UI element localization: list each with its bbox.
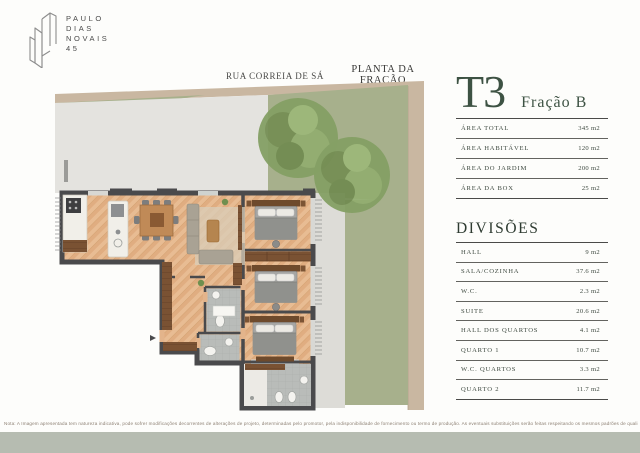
divisions-table: HALL 9 m2 SALA/COZINHA 37.6 m2 W.C. 2.3 … — [456, 243, 608, 400]
entrance-arrow-icon — [150, 335, 156, 341]
division-row: HALL 9 m2 — [456, 243, 608, 263]
floor-plan — [55, 80, 440, 415]
unit-type-code: T3 — [456, 70, 505, 114]
footer-bar — [0, 432, 640, 453]
tree-2 — [314, 137, 390, 213]
division-value: 11.7 m2 — [577, 386, 608, 393]
division-value: 20.6 m2 — [576, 308, 608, 315]
division-value: 10.7 m2 — [576, 347, 608, 354]
wardrobe-divider — [245, 252, 311, 262]
patio-terrace — [55, 95, 268, 193]
division-label: SUITE — [456, 308, 484, 315]
brand-name: PAULO DIAS NOVAIS 45 — [66, 14, 109, 54]
unit-title: T3 Fração B — [456, 70, 608, 116]
area-row: ÁREA HABITÁVEL 120 m2 — [456, 139, 608, 159]
bathroom-wc-quartos — [200, 335, 240, 361]
division-value: 37.6 m2 — [576, 268, 608, 275]
garden-right — [345, 200, 408, 405]
division-row: HALL DOS QUARTOS 4.1 m2 — [456, 321, 608, 341]
division-row: SALA/COZINHA 37.6 m2 — [456, 263, 608, 283]
area-label: ÁREA DA BOX — [456, 185, 514, 192]
dining-table — [134, 200, 179, 241]
division-value: 4.1 m2 — [580, 327, 608, 334]
bathroom-wc — [207, 289, 241, 332]
area-label: ÁREA HABITÁVEL — [456, 145, 529, 152]
division-label: W.C. — [456, 288, 478, 295]
area-label: ÁREA DO JARDIM — [456, 165, 527, 172]
area-value: 345 m2 — [578, 125, 608, 132]
divisions-title: DIVISÕES — [456, 220, 608, 238]
areas-table: ÁREA TOTAL 345 m2 ÁREA HABITÁVEL 120 m2 … — [456, 119, 608, 199]
brand-line: 45 — [66, 44, 109, 54]
division-label: QUARTO 2 — [456, 386, 499, 393]
patio-post — [64, 160, 68, 182]
division-value: 3.3 m2 — [580, 366, 608, 373]
division-row: SUITE 20.6 m2 — [456, 302, 608, 322]
brand-line: PAULO — [66, 14, 109, 24]
unit-fraction-label: Fração B — [521, 94, 587, 112]
division-value: 9 m2 — [585, 249, 608, 256]
floor-plan-drawing — [55, 80, 440, 415]
area-value: 120 m2 — [578, 145, 608, 152]
area-value: 200 m2 — [578, 165, 608, 172]
area-row: ÁREA DA BOX 25 m2 — [456, 179, 608, 199]
division-label: HALL — [456, 249, 482, 256]
bathroom-suite — [244, 364, 311, 406]
division-row: QUARTO 2 11.7 m2 — [456, 380, 608, 400]
garden-path — [313, 193, 345, 408]
area-label: ÁREA TOTAL — [456, 125, 509, 132]
disclaimer-note: Nota: A Imagem apresentada tem natureza … — [4, 421, 638, 426]
division-row: W.C. 2.3 m2 — [456, 282, 608, 302]
building-sketch-icon — [24, 6, 60, 68]
area-value: 25 m2 — [582, 185, 608, 192]
brand-logo: PAULO DIAS NOVAIS 45 — [24, 6, 109, 68]
suite-bedroom — [245, 316, 304, 362]
area-row: ÁREA DO JARDIM 200 m2 — [456, 159, 608, 179]
brand-line: NOVAIS — [66, 34, 109, 44]
division-label: QUARTO 1 — [456, 347, 499, 354]
division-value: 2.3 m2 — [580, 288, 608, 295]
division-label: SALA/COZINHA — [456, 268, 519, 275]
area-row: ÁREA TOTAL 345 m2 — [456, 119, 608, 139]
division-label: HALL DOS QUARTOS — [456, 327, 538, 334]
division-label: W.C. QUARTOS — [456, 366, 516, 373]
division-row: W.C. QUARTOS 3.3 m2 — [456, 361, 608, 381]
brand-line: DIAS — [66, 24, 109, 34]
division-row: QUARTO 1 10.7 m2 — [456, 341, 608, 361]
unit-info-panel: T3 Fração B ÁREA TOTAL 345 m2 ÁREA HABIT… — [456, 70, 608, 400]
